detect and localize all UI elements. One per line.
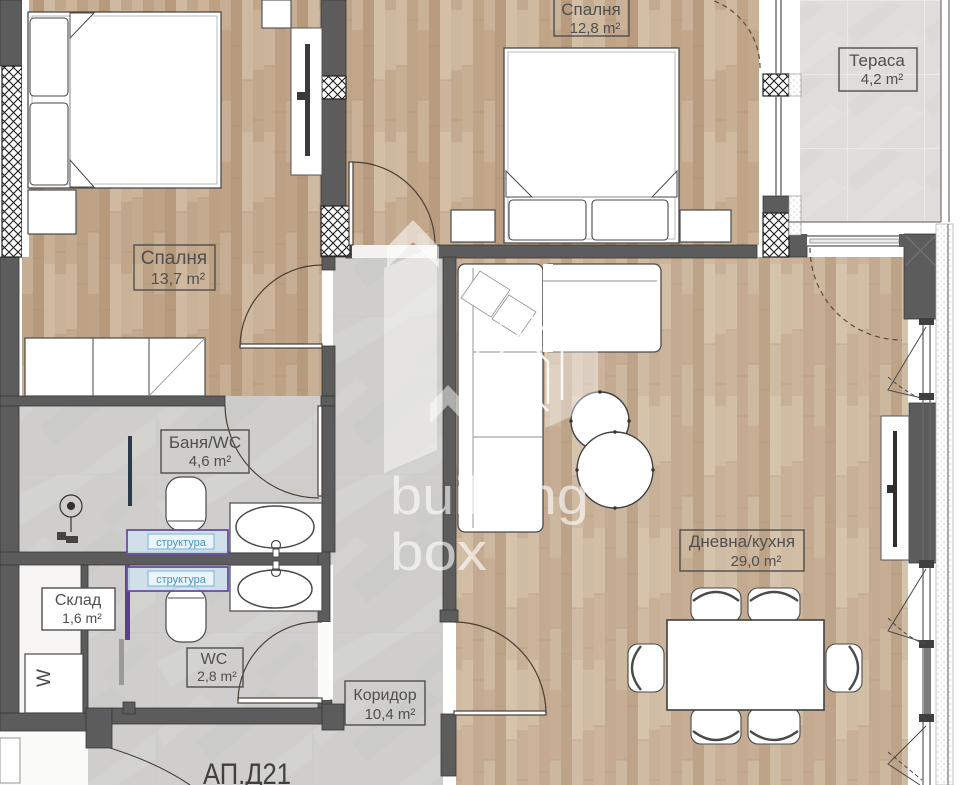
svg-text:12,8 m²: 12,8 m²: [570, 20, 621, 37]
svg-text:10,4 m²: 10,4 m²: [365, 706, 416, 723]
svg-text:1,6 m²: 1,6 m²: [62, 610, 102, 626]
svg-text:box: box: [390, 523, 487, 582]
svg-text:W: W: [34, 669, 55, 687]
svg-text:building: building: [390, 467, 589, 526]
svg-text:13,7 m²: 13,7 m²: [151, 271, 206, 288]
svg-text:Склад: Склад: [55, 592, 102, 609]
svg-text:структура: структура: [156, 574, 207, 586]
svg-text:Коридор: Коридор: [353, 687, 416, 704]
svg-text:2,8 m²: 2,8 m²: [197, 668, 237, 684]
svg-text:Дневна/кухня: Дневна/кухня: [689, 532, 795, 551]
svg-text:4,6 m²: 4,6 m²: [189, 453, 232, 470]
svg-text:29,0 m²: 29,0 m²: [731, 553, 782, 570]
svg-text:Тераса: Тераса: [849, 51, 905, 70]
svg-text:4,2 m²: 4,2 m²: [861, 71, 904, 88]
svg-text:АП.Д21: АП.Д21: [203, 758, 291, 785]
svg-text:структура: структура: [156, 537, 207, 549]
svg-text:WC: WC: [201, 651, 228, 668]
svg-text:Баня/WC: Баня/WC: [169, 433, 241, 452]
svg-text:Спалня: Спалня: [141, 248, 207, 269]
svg-text:Спалня: Спалня: [561, 0, 620, 19]
